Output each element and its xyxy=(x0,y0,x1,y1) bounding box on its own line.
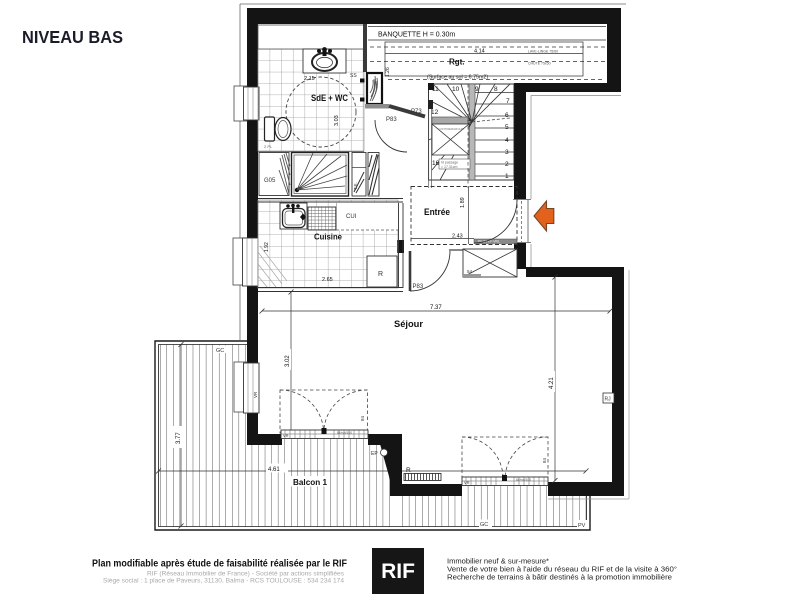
svg-text:1: 1 xyxy=(505,173,509,180)
svg-text:P83: P83 xyxy=(386,117,397,123)
svg-text:BANQUETTE H = 0.30m: BANQUETTE H = 0.30m xyxy=(378,32,455,39)
svg-text:7.37: 7.37 xyxy=(430,305,442,311)
svg-text:Entrée: Entrée xyxy=(424,207,450,217)
svg-text:NIVEAU BAS: NIVEAU BAS xyxy=(22,27,123,47)
svg-text:SdE + WC: SdE + WC xyxy=(311,93,349,103)
svg-text:VR: VR xyxy=(253,391,258,398)
svg-text:CONTREMARCHE: CONTREMARCHE xyxy=(438,127,464,131)
svg-text:84+vrl/100: 84+vrl/100 xyxy=(337,431,352,435)
svg-text:GC: GC xyxy=(216,348,224,354)
svg-text:Balcon 1: Balcon 1 xyxy=(293,478,327,487)
svg-text:VR: VR xyxy=(464,480,470,485)
svg-text:4.14: 4.14 xyxy=(474,49,485,55)
svg-text:1.89: 1.89 xyxy=(460,197,466,208)
svg-text:= 17.31cm: = 17.31cm xyxy=(441,165,458,169)
svg-text:RIF (Réseau Immobilier de Fran: RIF (Réseau Immobilier de France) - Soci… xyxy=(147,571,345,578)
svg-text:PV: PV xyxy=(578,523,586,529)
svg-text:SS: SS xyxy=(350,73,357,79)
svg-text:RJ: RJ xyxy=(605,397,612,403)
svg-text:5: 5 xyxy=(505,124,509,131)
svg-text:7: 7 xyxy=(506,98,510,105)
svg-text:Siège social : 1 place de Pave: Siège social : 1 place de Paveurs, 31130… xyxy=(103,578,344,585)
svg-text:R: R xyxy=(406,467,411,474)
svg-text:Recherche de terrains à bâtir: Recherche de terrains à bâtir destinés à… xyxy=(447,573,672,582)
svg-text:Rgt.: Rgt. xyxy=(449,58,465,67)
svg-text:84+vrl/100: 84+vrl/100 xyxy=(516,478,531,482)
svg-text:3.77: 3.77 xyxy=(176,432,182,444)
svg-text:10: 10 xyxy=(452,86,460,93)
svg-text:GC: GC xyxy=(480,522,488,528)
svg-text:3.02: 3.02 xyxy=(285,355,291,367)
svg-text:1.26: 1.26 xyxy=(385,67,391,77)
svg-text:Plan modifiable après étude de: Plan modifiable après étude de faisabili… xyxy=(92,559,347,570)
svg-text:11: 11 xyxy=(432,86,439,93)
svg-text:Cuisine: Cuisine xyxy=(314,232,342,242)
svg-text:1.92: 1.92 xyxy=(264,242,270,252)
svg-text:Séjour: Séjour xyxy=(394,319,423,330)
svg-text:LAVE-LINGE 75/60: LAVE-LINGE 75/60 xyxy=(528,50,558,54)
svg-text:R: R xyxy=(378,271,383,278)
svg-text:RIF: RIF xyxy=(381,560,415,583)
svg-text:4.21: 4.21 xyxy=(549,377,555,389)
svg-text:84: 84 xyxy=(542,457,547,463)
svg-text:2.43: 2.43 xyxy=(452,234,463,240)
svg-text:54: 54 xyxy=(467,269,473,274)
svg-text:G05: G05 xyxy=(264,178,276,184)
svg-text:6: 6 xyxy=(505,112,509,119)
svg-text:EP: EP xyxy=(371,451,378,457)
svg-text:2: 2 xyxy=(505,161,509,168)
svg-text:2 PL: 2 PL xyxy=(264,144,273,149)
svg-text:P83: P83 xyxy=(413,284,424,290)
svg-text:3: 3 xyxy=(505,149,509,156)
svg-text:P73: P73 xyxy=(411,109,422,115)
svg-text:4: 4 xyxy=(505,137,509,144)
svg-text:9: 9 xyxy=(475,86,479,93)
svg-text:3.03: 3.03 xyxy=(334,115,340,126)
svg-text:4.61: 4.61 xyxy=(268,467,280,473)
svg-text:ht passage: ht passage xyxy=(441,161,458,165)
svg-text:84: 84 xyxy=(360,415,365,421)
svg-text:8: 8 xyxy=(494,86,498,93)
svg-text:CHUTE 75x50: CHUTE 75x50 xyxy=(528,62,551,66)
svg-text:12: 12 xyxy=(431,109,439,116)
svg-text:T.E.: T.E. xyxy=(353,182,358,190)
svg-text:16: 16 xyxy=(432,160,440,167)
svg-text:CUI: CUI xyxy=(346,214,357,220)
svg-text:VR: VR xyxy=(283,433,289,438)
svg-text:2.65: 2.65 xyxy=(322,277,333,283)
